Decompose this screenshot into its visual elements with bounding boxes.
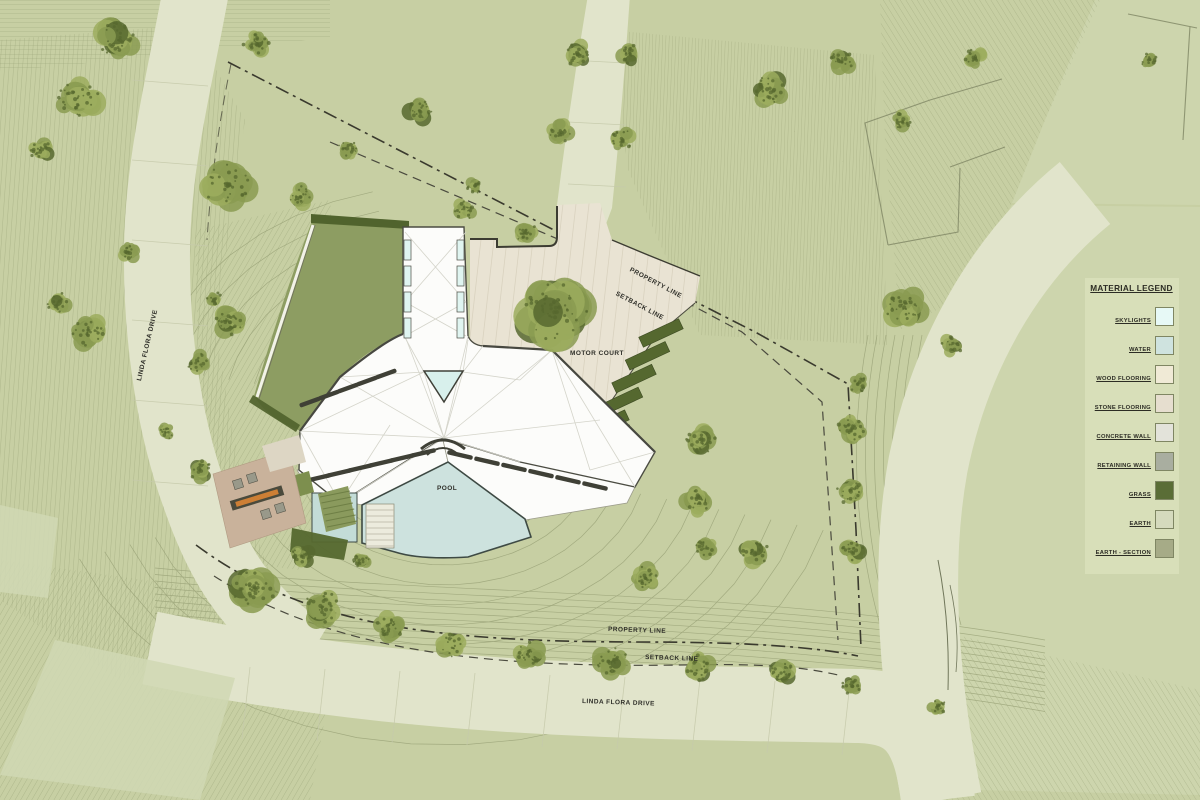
- material-legend-panel: MATERIAL LEGEND SKYLIGHTS WATER WOOD FLO…: [1085, 278, 1179, 574]
- legend-item-retaining-wall: RETAINING WALL: [1089, 442, 1174, 471]
- legend-swatch: [1155, 423, 1174, 442]
- legend-item-stone-flooring: STONE FLOORING: [1089, 384, 1174, 413]
- site-plan-canvas: LINDA FLORA DRIVE PROPERTY LINE SETBACK …: [0, 0, 1200, 800]
- legend-item-earth: EARTH: [1089, 500, 1174, 529]
- legend-swatch: [1155, 336, 1174, 355]
- legend-swatch: [1155, 510, 1174, 529]
- legend-item-concrete-wall: CONCRETE WALL: [1089, 413, 1174, 442]
- material-legend-title: MATERIAL LEGEND: [1089, 284, 1174, 293]
- legend-swatch: [1155, 452, 1174, 471]
- legend-item-wood-flooring: WOOD FLOORING: [1089, 355, 1174, 384]
- legend-swatch: [1155, 539, 1174, 558]
- legend-item-skylights: SKYLIGHTS: [1089, 297, 1174, 326]
- site-plan-graphic: [0, 0, 1200, 800]
- pool-label: POOL: [437, 485, 457, 492]
- legend-item-grass: GRASS: [1089, 471, 1174, 500]
- legend-swatch: [1155, 394, 1174, 413]
- motor-court-label: MOTOR COURT: [570, 350, 624, 357]
- legend-item-earth-section: EARTH - SECTION: [1089, 529, 1174, 558]
- legend-swatch: [1155, 365, 1174, 384]
- legend-swatch: [1155, 307, 1174, 326]
- legend-swatch: [1155, 481, 1174, 500]
- legend-item-water: WATER: [1089, 326, 1174, 355]
